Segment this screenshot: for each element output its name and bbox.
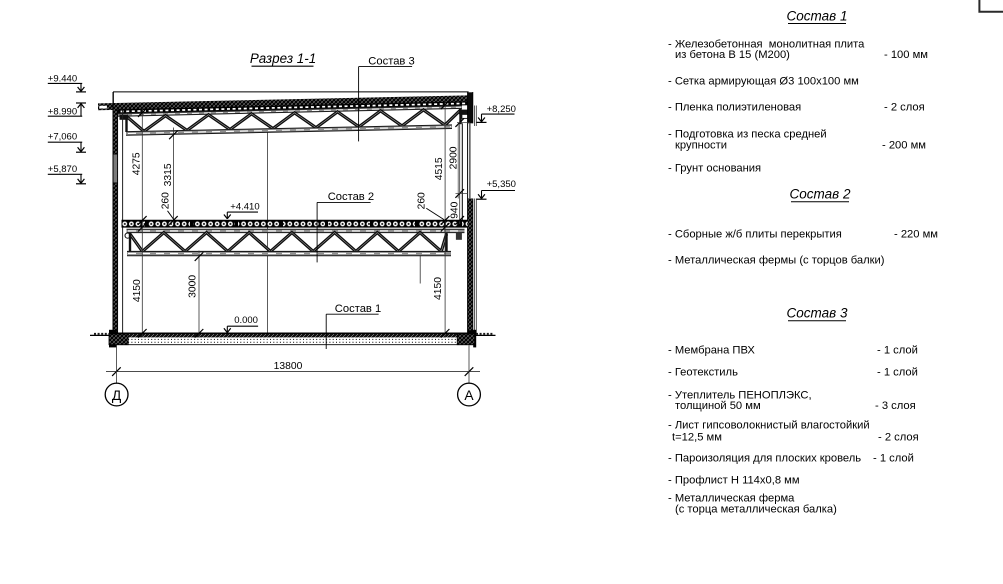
- svg-text:толщиной 50 мм: толщиной 50 мм: [675, 400, 761, 412]
- svg-text:- Сетка армирующая Ø3 100х100: - Сетка армирующая Ø3 100х100 мм: [668, 76, 859, 88]
- svg-text:13800: 13800: [274, 361, 303, 372]
- svg-text:- Металлическая фермы (с торцо: - Металлическая фермы (с торцов балки): [668, 255, 885, 267]
- svg-text:260: 260: [160, 192, 171, 209]
- svg-text:- Геотекстиль: - Геотекстиль: [668, 367, 738, 379]
- svg-text:t=12,5 мм: t=12,5 мм: [672, 432, 722, 444]
- svg-text:- 220 мм: - 220 мм: [894, 229, 938, 241]
- svg-text:Состав 1: Состав 1: [787, 8, 848, 23]
- svg-text:- Пленка полиэтиленовая: - Пленка полиэтиленовая: [668, 102, 801, 114]
- svg-text:3000: 3000: [188, 275, 199, 298]
- svg-text:- Лист гипсоволокнистый влагос: - Лист гипсоволокнистый влагостойкий: [668, 420, 870, 432]
- svg-text:3315: 3315: [163, 163, 174, 186]
- svg-text:Состав 3: Состав 3: [368, 55, 414, 67]
- svg-text:Д: Д: [112, 388, 122, 403]
- svg-text:- Пароизоляция для плоских кро: - Пароизоляция для плоских кровель: [668, 453, 861, 465]
- svg-text:крупности: крупности: [675, 140, 727, 152]
- svg-text:4150: 4150: [433, 277, 444, 300]
- svg-text:Состав 3: Состав 3: [787, 306, 848, 321]
- svg-text:Состав 2: Состав 2: [328, 191, 374, 203]
- svg-text:4150: 4150: [132, 279, 143, 302]
- svg-text:+5,350: +5,350: [487, 179, 516, 190]
- svg-text:0.000: 0.000: [234, 315, 258, 326]
- svg-text:- 2 слоя: - 2 слоя: [884, 102, 925, 114]
- svg-text:- 1 слой: - 1 слой: [877, 367, 918, 379]
- svg-text:+4.410: +4.410: [230, 202, 259, 213]
- svg-text:А: А: [464, 388, 474, 403]
- svg-text:+5,870: +5,870: [48, 164, 77, 175]
- svg-text:- Грунт основания: - Грунт основания: [668, 163, 761, 175]
- svg-text:Разрез 1-1: Разрез 1-1: [250, 51, 316, 66]
- svg-text:- 1 слой: - 1 слой: [877, 345, 918, 357]
- svg-text:Состав 1: Состав 1: [335, 303, 381, 315]
- svg-text:из бетона В 15 (М200): из бетона В 15 (М200): [675, 49, 790, 61]
- svg-text:- 1 слой: - 1 слой: [873, 453, 914, 465]
- svg-text:(с торца металлическая балка): (с торца металлическая балка): [675, 504, 837, 516]
- svg-text:- Мембрана ПВХ: - Мембрана ПВХ: [668, 345, 755, 357]
- svg-text:- 3 слоя: - 3 слоя: [875, 400, 916, 412]
- svg-text:4275: 4275: [131, 152, 142, 175]
- svg-text:4515: 4515: [434, 157, 445, 180]
- svg-text:- 200 мм: - 200 мм: [882, 140, 926, 152]
- svg-text:940: 940: [449, 201, 460, 218]
- svg-text:260: 260: [417, 192, 428, 209]
- svg-text:- Сборные ж/б плиты перекрытия: - Сборные ж/б плиты перекрытия: [668, 229, 842, 241]
- svg-text:- Профлист Н 114х0,8 мм: - Профлист Н 114х0,8 мм: [668, 475, 800, 487]
- svg-text:Состав 2: Состав 2: [790, 187, 851, 202]
- svg-text:- 100 мм: - 100 мм: [884, 49, 928, 61]
- svg-text:- 2 слоя: - 2 слоя: [878, 432, 919, 444]
- svg-text:2900: 2900: [449, 146, 460, 169]
- svg-text:+7,060: +7,060: [48, 131, 77, 142]
